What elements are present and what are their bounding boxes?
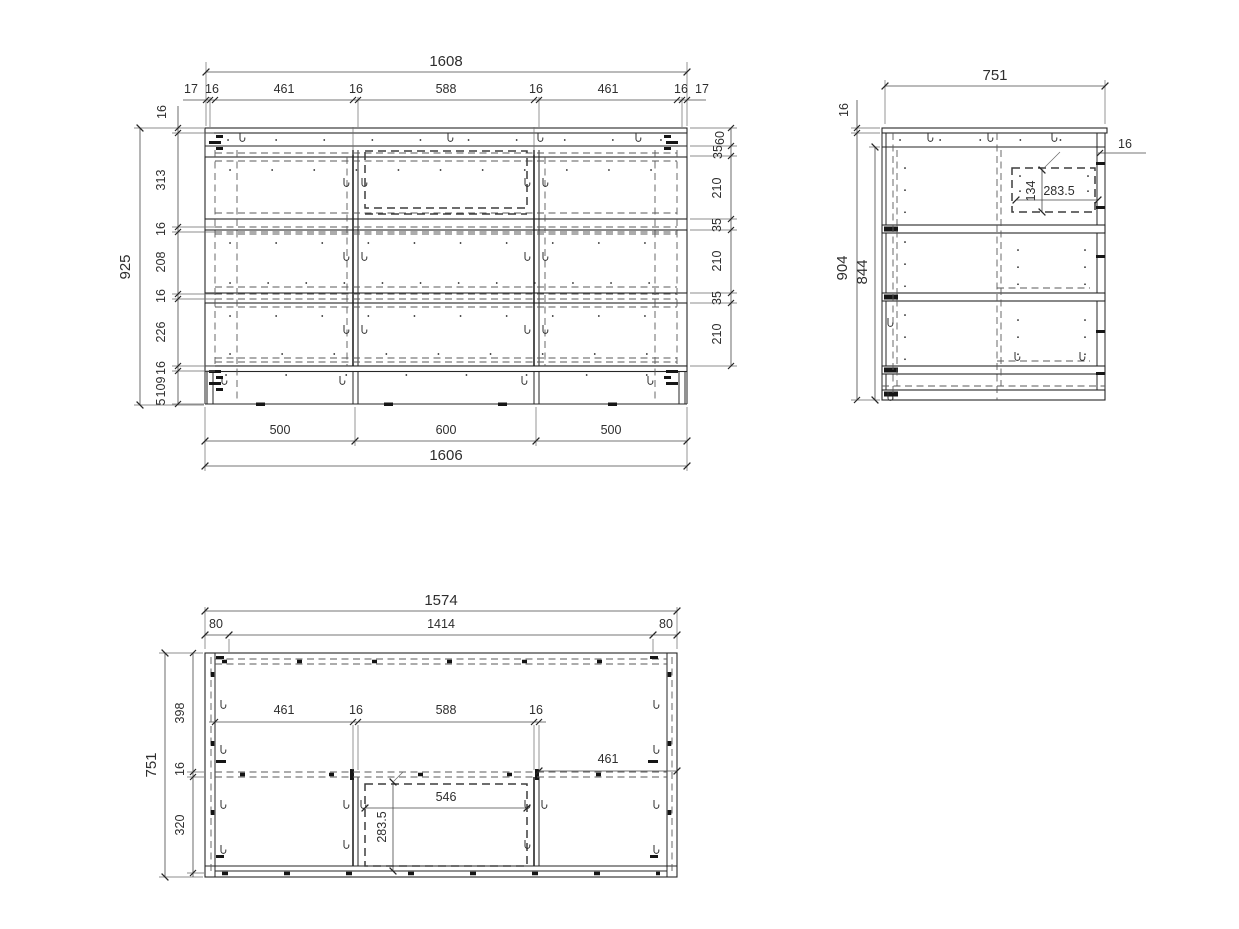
dim-tv-inner-width: 1414 [427, 617, 455, 631]
dim-tv-center-bay-inner-width: 546 [436, 790, 457, 804]
side-view-hidden-lines [882, 133, 1105, 400]
dim-fv-left-chain-16b: 16 [154, 289, 168, 303]
drawer-front-row2 [205, 230, 687, 293]
cam-hook [448, 133, 453, 141]
dim-fv-left-chain-313: 313 [154, 170, 168, 191]
dim-fv-overall-height: 925 [117, 254, 134, 279]
top-panel-side [882, 128, 1107, 133]
cam-hook [1015, 352, 1020, 360]
technical-drawing-canvas: 1608 17 16 461 16 588 16 461 16 17 925 1… [0, 0, 1239, 929]
cam-hook [340, 376, 345, 384]
dim-fv-overall-width-top: 1608 [429, 53, 462, 70]
dim-sv-carcass-height: 844 [854, 259, 871, 284]
foot-glide [608, 403, 617, 407]
dim-fv-top-chain-17L: 17 [184, 82, 198, 96]
side-view-dimensions: 751 16 904 844 16 134 283.5 [834, 67, 1146, 403]
dim-sv-top-16-right: 16 [1118, 137, 1132, 151]
dim-tv-drawer-depth: 283.5 [375, 811, 389, 842]
dim-tv-inner-chain-461: 461 [274, 703, 295, 717]
dim-tv-depth-chain-398: 398 [173, 703, 187, 724]
dim-fv-top-chain-461R: 461 [598, 82, 619, 96]
cam-hook [522, 376, 527, 384]
dim-fv-left-top-16: 16 [155, 105, 169, 119]
dim-fv-left-chain-5: 5 [154, 398, 168, 405]
dim-fv-overall-width-bottom: 1606 [429, 447, 462, 464]
dim-tv-left-offset: 80 [209, 617, 223, 631]
bottom-panel-edge [205, 366, 687, 372]
drawing-sheet: 1608 17 16 461 16 588 16 461 16 17 925 1… [0, 0, 1239, 929]
dim-fv-right-chain-35a: 35 [711, 145, 725, 159]
front-view: 1608 17 16 461 16 588 16 461 16 17 925 1… [117, 53, 737, 471]
cam-hook [928, 133, 933, 141]
dim-fv-top-chain-17R: 17 [695, 82, 709, 96]
dim-fv-top-chain-16d: 16 [674, 82, 688, 96]
dim-sv-top-16-left: 16 [837, 103, 851, 117]
dim-fv-left-chain-16c: 16 [154, 361, 168, 375]
dim-sv-slide-offset-depth: 283.5 [1043, 184, 1074, 198]
top-panel-edge [205, 128, 687, 133]
shelf-band-2 [882, 293, 1105, 301]
drawer-front-row3 [205, 303, 687, 366]
top-view: 1574 80 1414 80 751 398 16 320 461 16 58… [143, 592, 677, 877]
cam-hook [538, 133, 543, 141]
foot-glide [256, 403, 265, 407]
dim-fv-right-chain-210a: 210 [710, 178, 724, 199]
dim-tv-right-bay-width: 461 [598, 752, 619, 766]
cam-hook [988, 133, 993, 141]
dim-fv-right-chain-210b: 210 [710, 251, 724, 272]
dim-fv-left-chain-208: 208 [154, 252, 168, 273]
dim-fv-right-chain-35c: 35 [710, 291, 724, 305]
dim-tv-inner-chain-16a: 16 [349, 703, 363, 717]
dim-fv-left-chain-109: 109 [154, 377, 168, 398]
dim-fv-bottom-500R: 500 [601, 423, 622, 437]
dim-tv-inner-chain-16b: 16 [529, 703, 543, 717]
dim-tv-inner-chain-588: 588 [436, 703, 457, 717]
dim-fv-bottom-600: 600 [436, 423, 457, 437]
dim-sv-slide-offset-height: 134 [1024, 181, 1038, 202]
side-view-carcass [882, 128, 1107, 400]
dim-fv-left-chain-16a: 16 [154, 222, 168, 236]
dim-tv-depth-chain-320: 320 [173, 815, 187, 836]
dim-tv-overall-depth: 751 [143, 752, 160, 777]
side-view-hardware [888, 133, 1090, 400]
bottom-band [882, 390, 1105, 400]
dim-fv-top-chain-16c: 16 [529, 82, 543, 96]
dim-sv-overall-height: 904 [834, 255, 851, 280]
dim-tv-right-offset: 80 [659, 617, 673, 631]
dim-tv-depth-chain-16: 16 [173, 762, 187, 776]
dim-fv-right-chain-35b: 35 [710, 218, 724, 232]
shelf-band-1 [882, 225, 1105, 233]
foot-glide [498, 403, 507, 407]
shelf-band-3 [882, 366, 1105, 374]
dim-fv-top-chain-16a: 16 [205, 82, 219, 96]
dim-fv-top-chain-461L: 461 [274, 82, 295, 96]
cam-hook [240, 133, 245, 141]
dim-fv-bottom-500L: 500 [270, 423, 291, 437]
cam-hook [648, 376, 653, 384]
front-view-carcass [205, 128, 687, 406]
dim-tv-overall-width: 1574 [424, 592, 457, 609]
cam-hook [888, 318, 893, 326]
dim-fv-right-chain-60: 60 [713, 131, 727, 145]
cam-hook [1052, 133, 1057, 141]
dim-fv-left-chain-226: 226 [154, 322, 168, 343]
cam-hook [636, 133, 641, 141]
dim-fv-right-chain-210c: 210 [710, 324, 724, 345]
side-view: 751 16 904 844 16 134 283.5 [834, 67, 1146, 403]
dim-fv-top-chain-16b: 16 [349, 82, 363, 96]
dim-fv-top-chain-588: 588 [436, 82, 457, 96]
foot-glide [384, 403, 393, 407]
dim-sv-overall-depth: 751 [982, 67, 1007, 84]
cam-hook [1080, 352, 1085, 360]
drawer-front-row1 [205, 157, 687, 219]
